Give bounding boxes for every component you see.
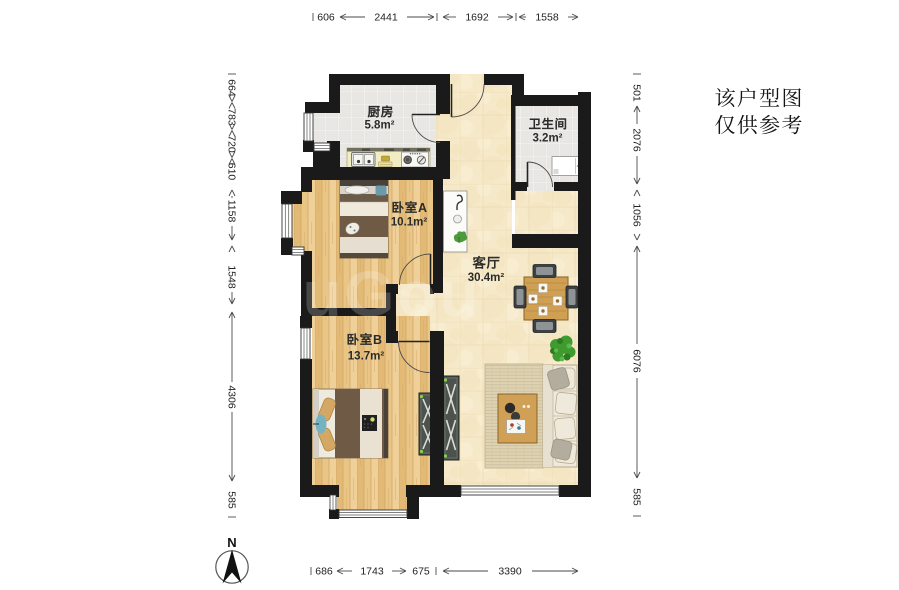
svg-text:783: 783 — [226, 108, 238, 126]
svg-text:N: N — [227, 535, 236, 550]
svg-text:1158: 1158 — [226, 200, 238, 223]
svg-text:610: 610 — [226, 163, 238, 181]
svg-text:1558: 1558 — [535, 12, 559, 24]
svg-text:3.2m²: 3.2m² — [532, 133, 562, 145]
svg-text:606: 606 — [317, 12, 335, 24]
svg-text:501: 501 — [631, 84, 643, 102]
svg-text:4306: 4306 — [226, 385, 238, 409]
svg-text:uGou: uGou — [302, 258, 481, 330]
svg-text:B: B — [373, 333, 382, 347]
svg-text:3390: 3390 — [498, 566, 522, 578]
svg-text:1692: 1692 — [465, 12, 489, 24]
svg-text:585: 585 — [631, 488, 643, 506]
svg-text:10.1m²: 10.1m² — [391, 217, 428, 229]
svg-text:1056: 1056 — [631, 203, 643, 227]
svg-text:1743: 1743 — [360, 566, 384, 578]
svg-text:686: 686 — [315, 566, 333, 578]
svg-text:1548: 1548 — [226, 265, 238, 289]
svg-text:585: 585 — [226, 491, 238, 509]
svg-text:6076: 6076 — [631, 349, 643, 373]
svg-text:13.7m²: 13.7m² — [348, 351, 385, 363]
svg-text:5.8m²: 5.8m² — [364, 120, 394, 132]
svg-text:675: 675 — [412, 566, 430, 578]
svg-text:2441: 2441 — [374, 12, 398, 24]
svg-text:A: A — [418, 201, 427, 215]
svg-text:720: 720 — [226, 135, 238, 153]
svg-text:664: 664 — [226, 79, 238, 97]
svg-text:2076: 2076 — [631, 128, 643, 152]
